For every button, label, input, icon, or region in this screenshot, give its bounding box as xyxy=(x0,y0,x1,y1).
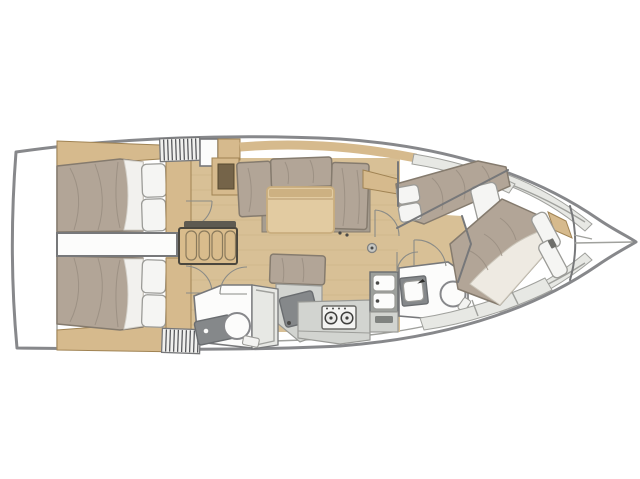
pillow xyxy=(141,199,166,232)
cabinet-handle xyxy=(375,316,393,323)
pillow xyxy=(398,202,423,223)
settee-cushion xyxy=(271,157,333,188)
pillow xyxy=(141,260,166,294)
washbasin-vanity xyxy=(400,276,429,307)
table-leg-dot xyxy=(345,233,348,236)
galley-sink xyxy=(370,272,398,332)
companionway-stairs xyxy=(179,221,237,264)
bedside-trim xyxy=(166,258,191,332)
forestay-line xyxy=(575,242,633,243)
nav-cabinet xyxy=(212,158,239,195)
table-leg-dot xyxy=(338,231,341,234)
pillow xyxy=(396,184,421,205)
floorplan-stage xyxy=(0,0,640,479)
toilet-bowl xyxy=(224,313,250,339)
saloon-table xyxy=(267,187,334,233)
stove xyxy=(322,306,356,329)
port-settee xyxy=(269,254,325,285)
basin-dot xyxy=(204,329,209,334)
settee-cushion xyxy=(269,254,325,285)
faucet xyxy=(376,299,380,303)
pillow xyxy=(141,164,166,198)
sliding-hatch-bottom xyxy=(162,328,201,353)
engine-compartment xyxy=(57,233,177,256)
pillow xyxy=(141,295,166,328)
layout-plan xyxy=(0,0,640,479)
sliding-hatch-top xyxy=(160,137,201,161)
cabinet-inset xyxy=(218,164,234,189)
faucet xyxy=(376,281,380,285)
